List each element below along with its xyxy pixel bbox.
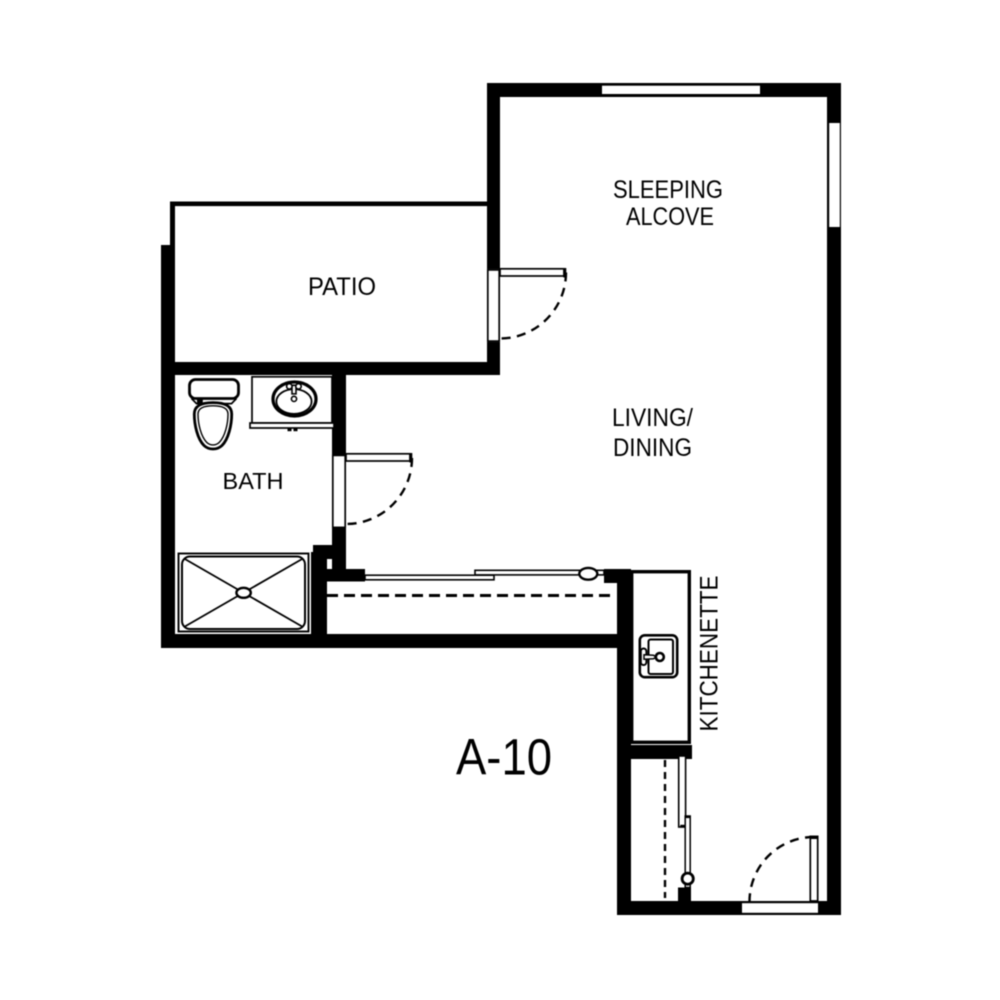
svg-text:SLEEPING: SLEEPING (613, 176, 723, 204)
svg-text:LIVING/: LIVING/ (612, 404, 693, 432)
svg-text:DINING: DINING (613, 434, 692, 462)
svg-text:BATH: BATH (223, 468, 284, 494)
svg-text:A-10: A-10 (456, 729, 552, 786)
svg-text:KITCHENETTE: KITCHENETTE (696, 576, 724, 732)
svg-text:ALCOVE: ALCOVE (626, 203, 714, 231)
svg-text:PATIO: PATIO (308, 273, 376, 301)
